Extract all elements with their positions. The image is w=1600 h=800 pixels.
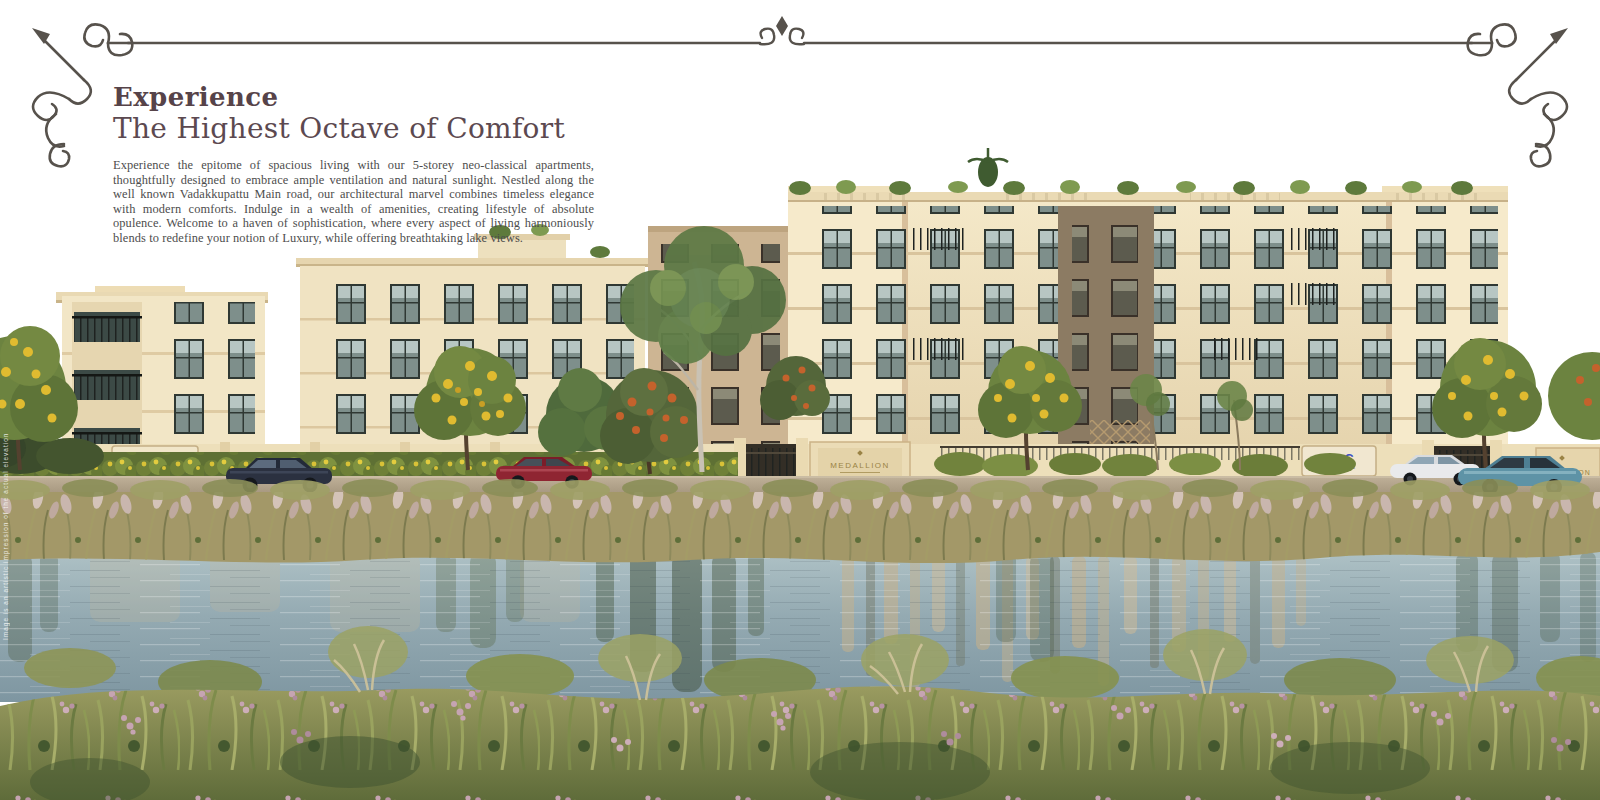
entry-gate-left bbox=[734, 438, 808, 480]
copy-block: Experience The Highest Octave of Comfort… bbox=[113, 82, 613, 246]
edge-disclaimer: Image is an artistic impression of the a… bbox=[2, 330, 9, 640]
body-paragraph: Experience the epitome of spacious livin… bbox=[113, 158, 594, 246]
reed-bank bbox=[0, 479, 1600, 563]
medallion-sign-center-label: MEDALLION bbox=[830, 461, 890, 470]
brochure-page: DAC DEVELOPERS MEDALLION DAC DEVELOPERS … bbox=[0, 0, 1600, 800]
right-building bbox=[788, 148, 1508, 474]
rooftop-plants bbox=[789, 148, 1473, 195]
heading-line2: The Highest Octave of Comfort bbox=[113, 112, 613, 145]
heading-line1: Experience bbox=[113, 82, 613, 112]
